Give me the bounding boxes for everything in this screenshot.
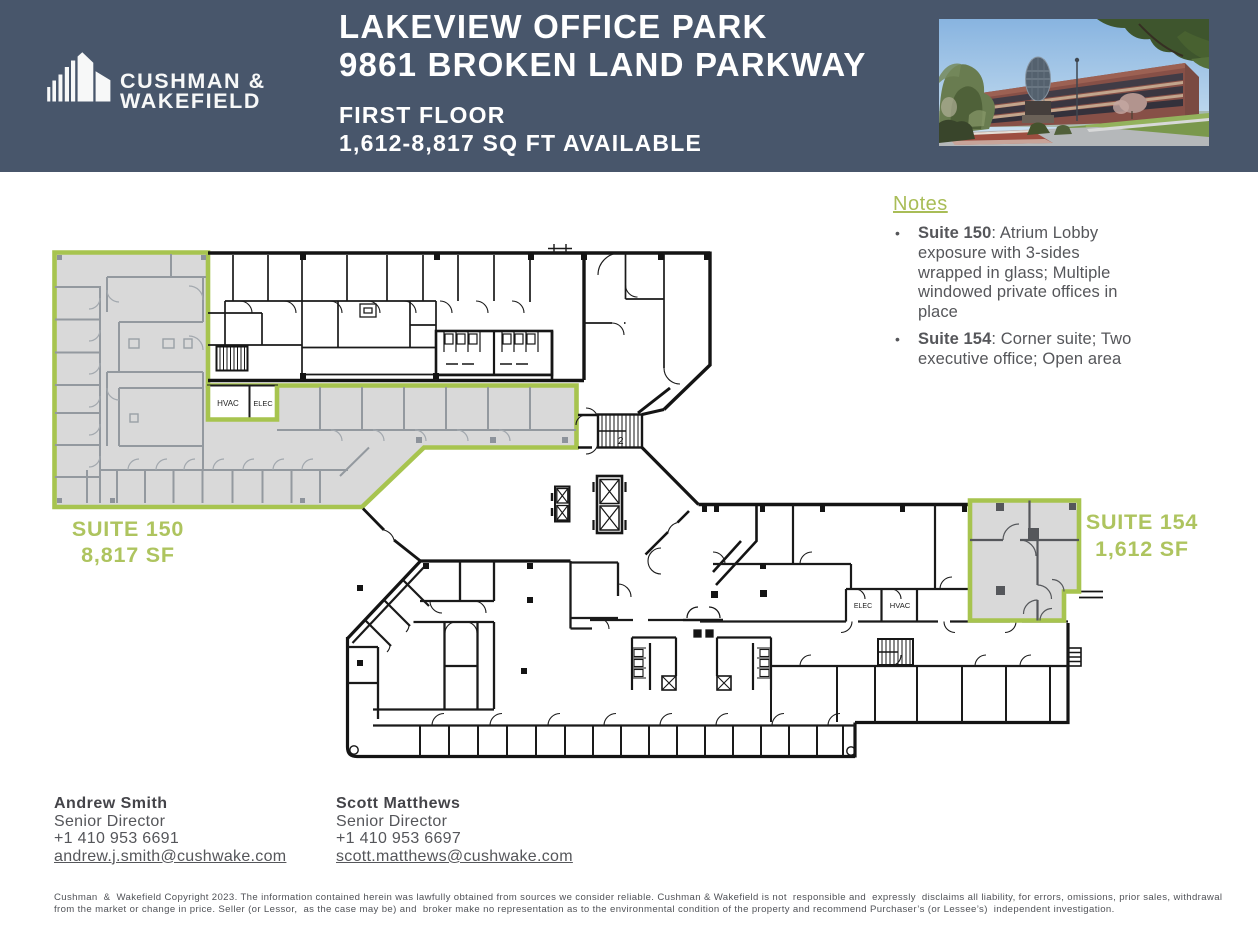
- svg-text:ELEC: ELEC: [854, 603, 872, 610]
- svg-text:ELEC: ELEC: [253, 399, 273, 408]
- svg-text:HVAC: HVAC: [217, 399, 239, 408]
- svg-text:2: 2: [618, 436, 624, 447]
- svg-text:HVAC: HVAC: [890, 601, 911, 610]
